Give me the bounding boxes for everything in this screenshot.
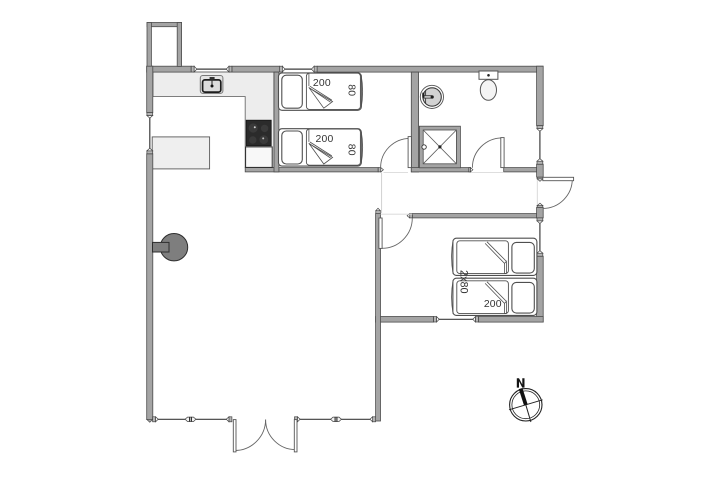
svg-text:200: 200 [316,134,334,145]
svg-text:80: 80 [345,144,356,156]
svg-text:200: 200 [484,299,502,310]
svg-text:2x80: 2x80 [457,270,469,294]
svg-text:80: 80 [346,84,357,96]
svg-text:200: 200 [313,78,331,89]
